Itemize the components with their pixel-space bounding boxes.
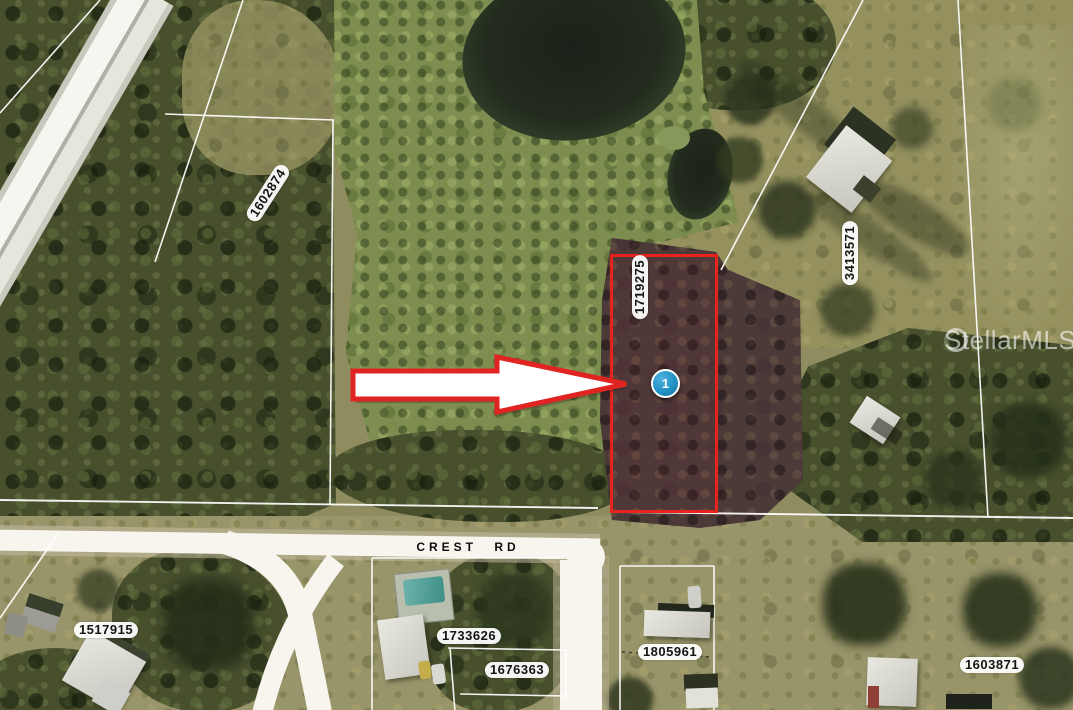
- marker-number: 1: [662, 376, 669, 391]
- arrow-icon: [353, 357, 626, 412]
- watermark-text: StellarMLS: [944, 325, 1073, 356]
- aerial-parcel-map: 1602874 1719275 3413571 1517915 1733626 …: [0, 0, 1073, 710]
- pointer-arrow: [0, 0, 1073, 710]
- selected-parcel-marker[interactable]: 1: [651, 369, 680, 398]
